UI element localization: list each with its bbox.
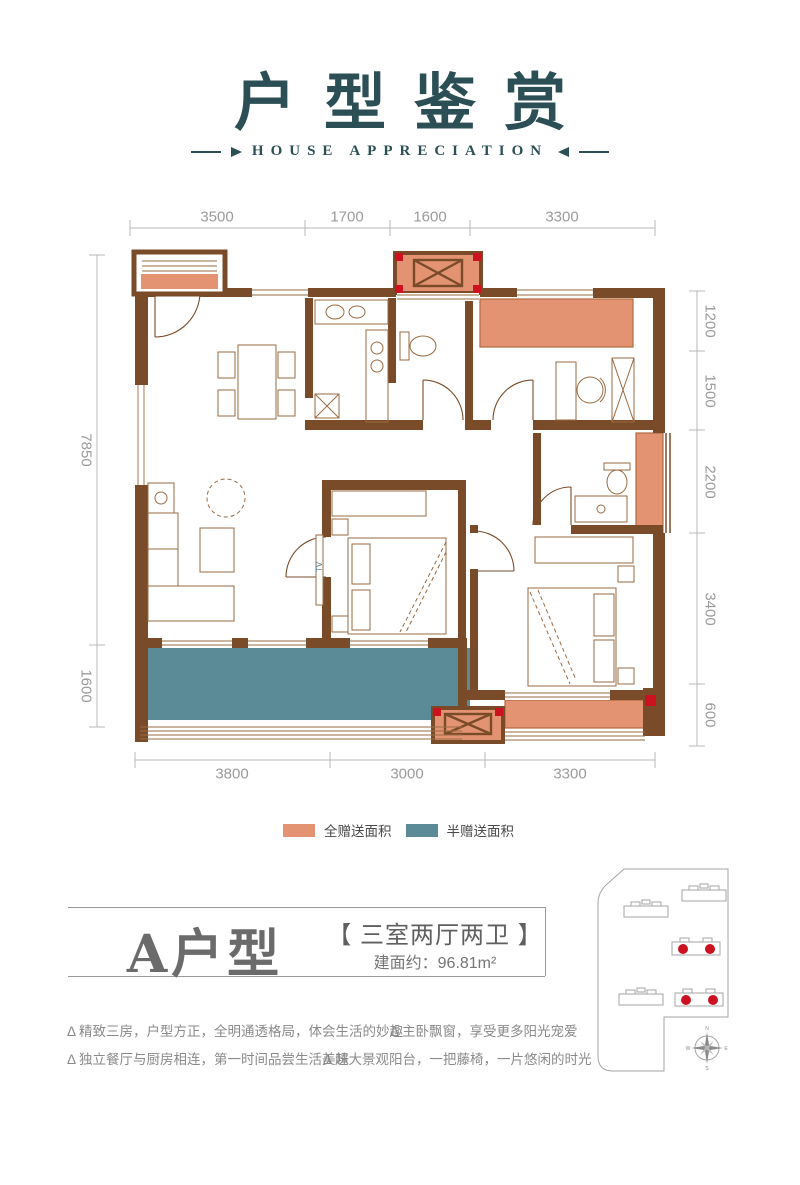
dim-bottom-2: 3000	[390, 766, 423, 783]
dim-right-1: 1200	[702, 304, 719, 337]
dim-right-5: 600	[702, 702, 719, 727]
unit-area: 建面约：96.81m²	[320, 949, 550, 973]
top-left-balcony	[134, 252, 225, 294]
half-gift-swatch	[406, 824, 438, 837]
site-plan	[598, 869, 728, 1071]
legend: 全赠送面积 半赠送面积	[283, 820, 514, 840]
compass-icon: N E S W	[686, 1026, 729, 1072]
dim-left-2: 1600	[78, 669, 95, 702]
feature-1: Δ 精致三房，户型方正，全明通透格局，体会生活的妙趣	[67, 1020, 403, 1040]
legend-item-full-gift: 全赠送面积	[283, 820, 392, 840]
building-2	[682, 884, 726, 901]
top-shaft	[395, 253, 481, 293]
dim-right-3: 2200	[702, 465, 719, 498]
dim-top-1: 3500	[200, 209, 233, 226]
svg-text:S: S	[705, 1066, 709, 1072]
dim-right-4: 3400	[702, 592, 719, 625]
tv-label: TV	[315, 561, 324, 572]
feature-2: Δ 主卧飘窗，享受更多阳光宠爱	[390, 1020, 578, 1040]
unit-block-top-line	[68, 907, 545, 908]
dim-bottom-1: 3800	[215, 766, 248, 783]
building-1	[624, 900, 668, 917]
feature-4: Δ 超大景观阳台，一把藤椅，一片悠闲的时光	[323, 1048, 592, 1068]
legend-item-half-gift: 半赠送面积	[406, 820, 515, 840]
feature-3: Δ 独立餐厅与厨房相连，第一时间品尝生活美味	[67, 1048, 349, 1068]
dim-bottom-3: 3300	[553, 766, 586, 783]
dim-top-2: 1700	[330, 209, 363, 226]
unit-name: A户型	[100, 912, 310, 987]
building-3-highlighted	[672, 938, 720, 955]
svg-text:W: W	[686, 1046, 691, 1052]
building-4	[619, 988, 663, 1005]
balcony-railing	[140, 727, 645, 740]
building-5-highlighted	[675, 989, 723, 1006]
dim-right-2: 1500	[702, 374, 719, 407]
unit-layout: 【 三室两厅两卫 】	[320, 915, 550, 950]
floorplan-drawing: TV	[0, 0, 800, 1185]
dim-left-1: 7850	[78, 433, 95, 466]
dim-top-4: 3300	[545, 209, 578, 226]
svg-text:E: E	[724, 1046, 728, 1052]
half-gift-label: 半赠送面积	[447, 820, 515, 840]
full-gift-label: 全赠送面积	[324, 820, 392, 840]
svg-text:N: N	[705, 1026, 709, 1032]
full-gift-swatch	[283, 824, 315, 837]
dim-top-3: 1600	[413, 209, 446, 226]
